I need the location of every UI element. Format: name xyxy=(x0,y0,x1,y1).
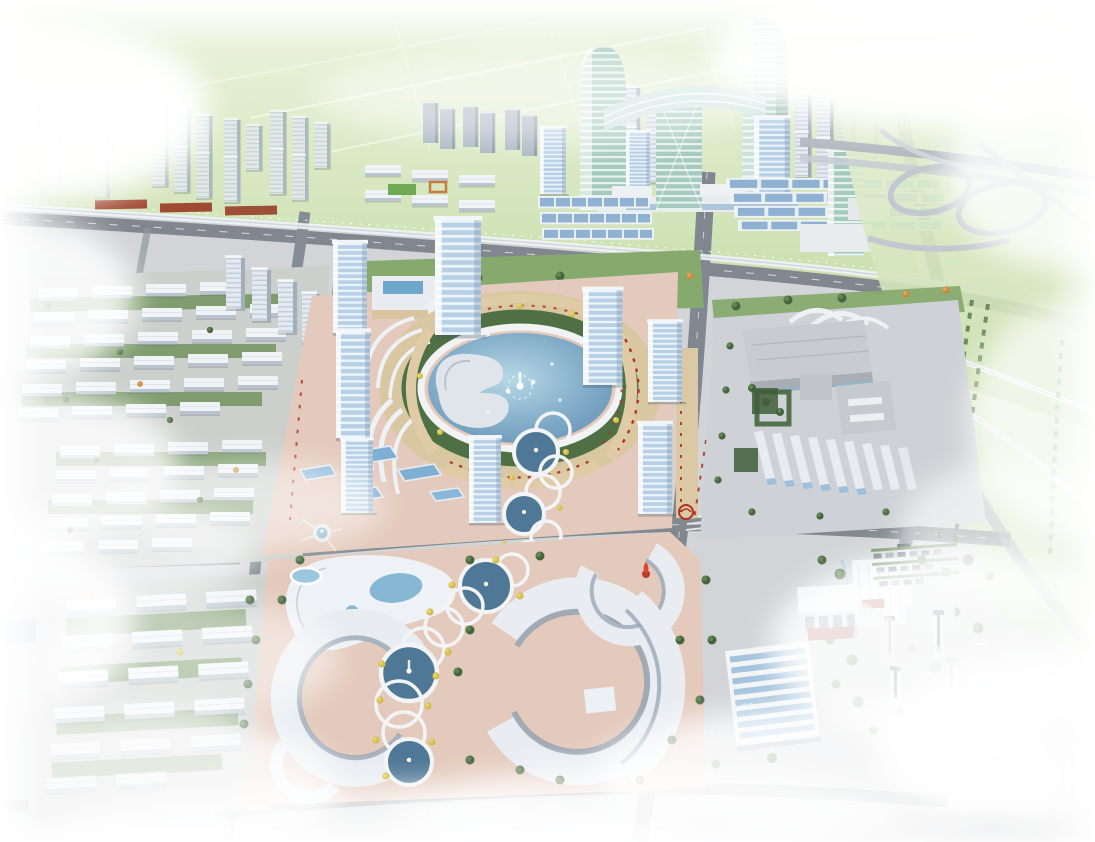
rooftop-pool-west xyxy=(291,568,321,584)
bottom-haze xyxy=(0,812,1095,842)
campus-infill-block xyxy=(584,686,616,713)
top-haze xyxy=(0,0,1095,52)
right-haze xyxy=(1047,0,1095,842)
aerial-rendering: Bird's-eye architectural rendering of a … xyxy=(0,0,1095,842)
left-haze xyxy=(0,0,48,842)
tree-square-2 xyxy=(734,448,758,472)
e-shaped-building xyxy=(836,381,896,435)
retail-roof-pool xyxy=(383,281,423,294)
school-field xyxy=(388,184,416,195)
rendering-canvas: Bird's-eye architectural rendering of a … xyxy=(0,0,1095,842)
tree-square-1 xyxy=(752,388,778,414)
